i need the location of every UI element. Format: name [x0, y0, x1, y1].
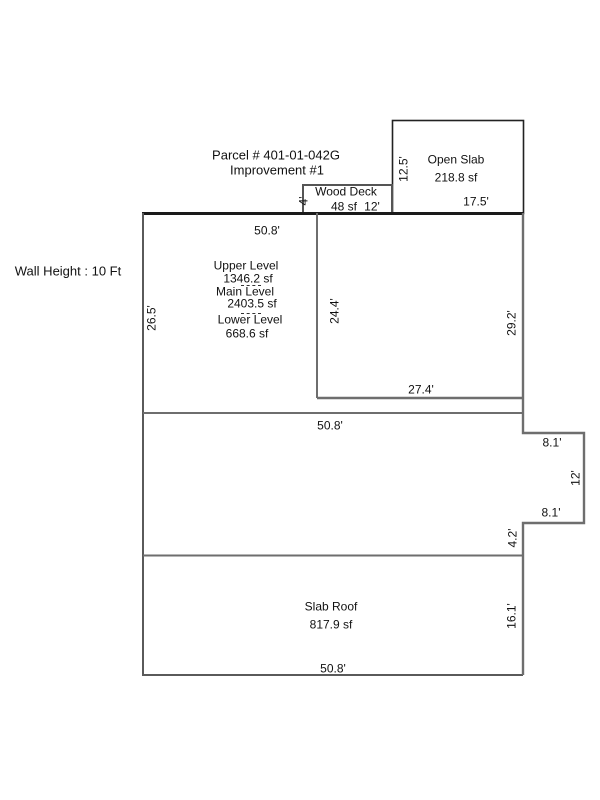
open-slab-area: 218.8 sf: [435, 172, 478, 185]
main-level-area: 2403.5 sf: [227, 298, 276, 311]
inner-bottom-dim: 27.4': [408, 384, 434, 397]
lower-level-area: 668.6 sf: [226, 328, 269, 341]
parcel-number-label: Parcel # 401-01-042G: [212, 149, 340, 162]
wood-deck-area: 48 sf: [331, 201, 357, 214]
wall-height-label: Wall Height : 10 Ft: [15, 265, 121, 278]
slab-roof-bottom-width-dim: 50.8': [320, 663, 346, 676]
slab-roof-right-height-dim: 16.1': [506, 603, 519, 629]
slab-roof-area: 817.9 sf: [310, 619, 353, 632]
levels-left-height-dim: 26.5': [146, 305, 159, 331]
open-slab-outline: [393, 121, 524, 214]
wood-deck-width-dim: 12': [364, 201, 380, 214]
lower-level-label: Lower Level: [218, 314, 283, 327]
notch-right-dim: 12': [570, 470, 583, 486]
open-slab-name: Open Slab: [428, 154, 485, 167]
open-slab-width-dim: 17.5': [463, 196, 489, 209]
wood-deck-height-dim: 4': [298, 197, 311, 206]
inner-right-dim: 29.2': [506, 310, 519, 336]
sketch-drawing: [0, 0, 600, 800]
inner-left-dim: 24.4': [329, 298, 342, 324]
notch-top-dim: 8.1': [543, 437, 562, 450]
notch-bottom-dim: 8.1': [542, 507, 561, 520]
middle-width-dim: 50.8': [317, 420, 343, 433]
wood-deck-name: Wood Deck: [315, 186, 377, 199]
improvement-label: Improvement #1: [230, 164, 324, 177]
open-slab-height-dim: 12.5': [398, 156, 411, 182]
right-lower-dim: 4.2': [507, 529, 520, 548]
parcel-sketch-page: Parcel # 401-01-042G Improvement #1 Wall…: [0, 0, 600, 800]
levels-top-width-dim: 50.8': [254, 225, 280, 238]
slab-roof-name: Slab Roof: [305, 601, 358, 614]
